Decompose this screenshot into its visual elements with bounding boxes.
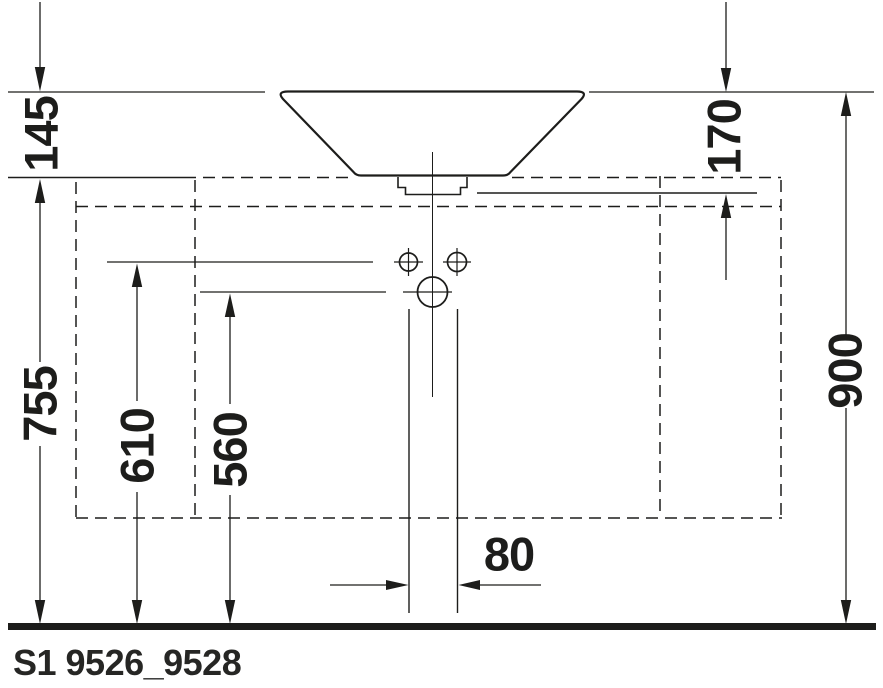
technical-drawing-canvas: 145 170 755 610 560 900 80 S1 9526_9528 <box>0 0 883 688</box>
dim-900-arrow-down <box>841 600 851 624</box>
dim-80-arrow-left <box>459 580 481 590</box>
dim-900-arrow-up <box>841 92 851 116</box>
dim-610-arrow-up <box>132 264 142 288</box>
floor-line <box>8 623 876 630</box>
dim-610-arrow-down <box>132 600 142 624</box>
dimension-lines <box>35 2 851 624</box>
dim-145-arrow-down <box>35 67 45 92</box>
dim-170-arrow-down <box>721 68 731 92</box>
dimension-80-label: 80 <box>484 531 534 578</box>
drawing-code-label: S1 9526_9528 <box>13 645 241 681</box>
dimension-900-label: 900 <box>822 333 869 408</box>
dim-755-arrow-down <box>35 600 45 624</box>
dim-560-arrow-up <box>225 294 235 318</box>
dimension-170-label: 170 <box>701 99 748 174</box>
dim-560-arrow-down <box>225 600 235 624</box>
dimension-145-label: 145 <box>18 96 65 171</box>
dimension-560-label: 560 <box>207 412 254 487</box>
drawing-linework <box>0 0 883 688</box>
dimension-610-label: 610 <box>114 408 161 483</box>
dimension-755-label: 755 <box>17 366 64 441</box>
dim-80-arrow-right <box>386 580 409 590</box>
dim-755-arrow-up <box>35 179 45 203</box>
washbasin <box>281 92 584 398</box>
